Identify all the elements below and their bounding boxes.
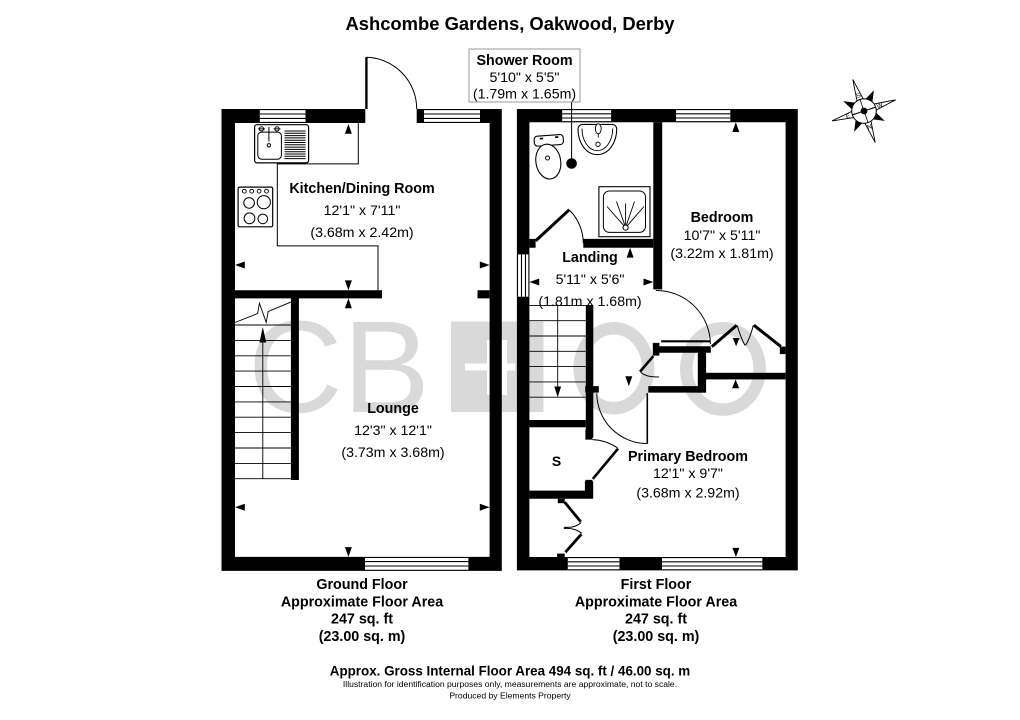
svg-text:S: S (552, 453, 561, 469)
svg-text:247 sq. ft: 247 sq. ft (625, 612, 687, 628)
svg-text:Ground Floor: Ground Floor (316, 577, 408, 593)
svg-text:(1.81m x 1.68m): (1.81m x 1.68m) (538, 294, 641, 310)
svg-text:Lounge: Lounge (367, 401, 419, 417)
svg-text:(23.00 sq. m): (23.00 sq. m) (613, 629, 700, 645)
svg-text:12'1" x 7'11": 12'1" x 7'11" (324, 203, 401, 219)
svg-text:(3.22m x 1.81m): (3.22m x 1.81m) (670, 246, 773, 262)
svg-text:12'3" x 12'1": 12'3" x 12'1" (354, 423, 432, 439)
svg-text:5'11" x 5'6": 5'11" x 5'6" (556, 272, 625, 288)
svg-text:247 sq. ft: 247 sq. ft (331, 612, 393, 628)
svg-text:First Floor: First Floor (621, 577, 692, 593)
svg-text:Approx. Gross Internal Floor A: Approx. Gross Internal Floor Area 494 sq… (330, 664, 691, 679)
svg-text:Bedroom: Bedroom (691, 210, 754, 226)
svg-text:Illustration for identificatio: Illustration for identification purposes… (343, 679, 677, 689)
svg-text:Landing: Landing (562, 250, 618, 266)
svg-text:Approximate Floor Area: Approximate Floor Area (575, 595, 738, 611)
svg-text:(3.68m x 2.92m): (3.68m x 2.92m) (636, 486, 739, 502)
svg-text:Approximate Floor Area: Approximate Floor Area (281, 595, 444, 611)
svg-text:CB: CB (248, 293, 430, 440)
svg-text:5'10" x 5'5": 5'10" x 5'5" (490, 70, 560, 86)
svg-text:Ashcombe Gardens, Oakwood, Der: Ashcombe Gardens, Oakwood, Derby (345, 13, 675, 34)
svg-text:(3.68m x 2.42m): (3.68m x 2.42m) (310, 225, 413, 241)
svg-text:(23.00 sq. m): (23.00 sq. m) (319, 629, 406, 645)
svg-text:Shower Room: Shower Room (476, 53, 572, 69)
svg-text:Primary Bedroom: Primary Bedroom (628, 449, 748, 465)
svg-text:(1.79m x 1.65m): (1.79m x 1.65m) (473, 87, 576, 103)
svg-text:(3.73m x 3.68m): (3.73m x 3.68m) (341, 445, 444, 461)
svg-text:12'1" x 9'7": 12'1" x 9'7" (653, 466, 723, 482)
svg-text:10'7" x 5'11": 10'7" x 5'11" (684, 228, 761, 244)
svg-text:Kitchen/Dining Room: Kitchen/Dining Room (289, 181, 434, 197)
svg-text:Produced by Elements Property: Produced by Elements Property (449, 691, 571, 701)
